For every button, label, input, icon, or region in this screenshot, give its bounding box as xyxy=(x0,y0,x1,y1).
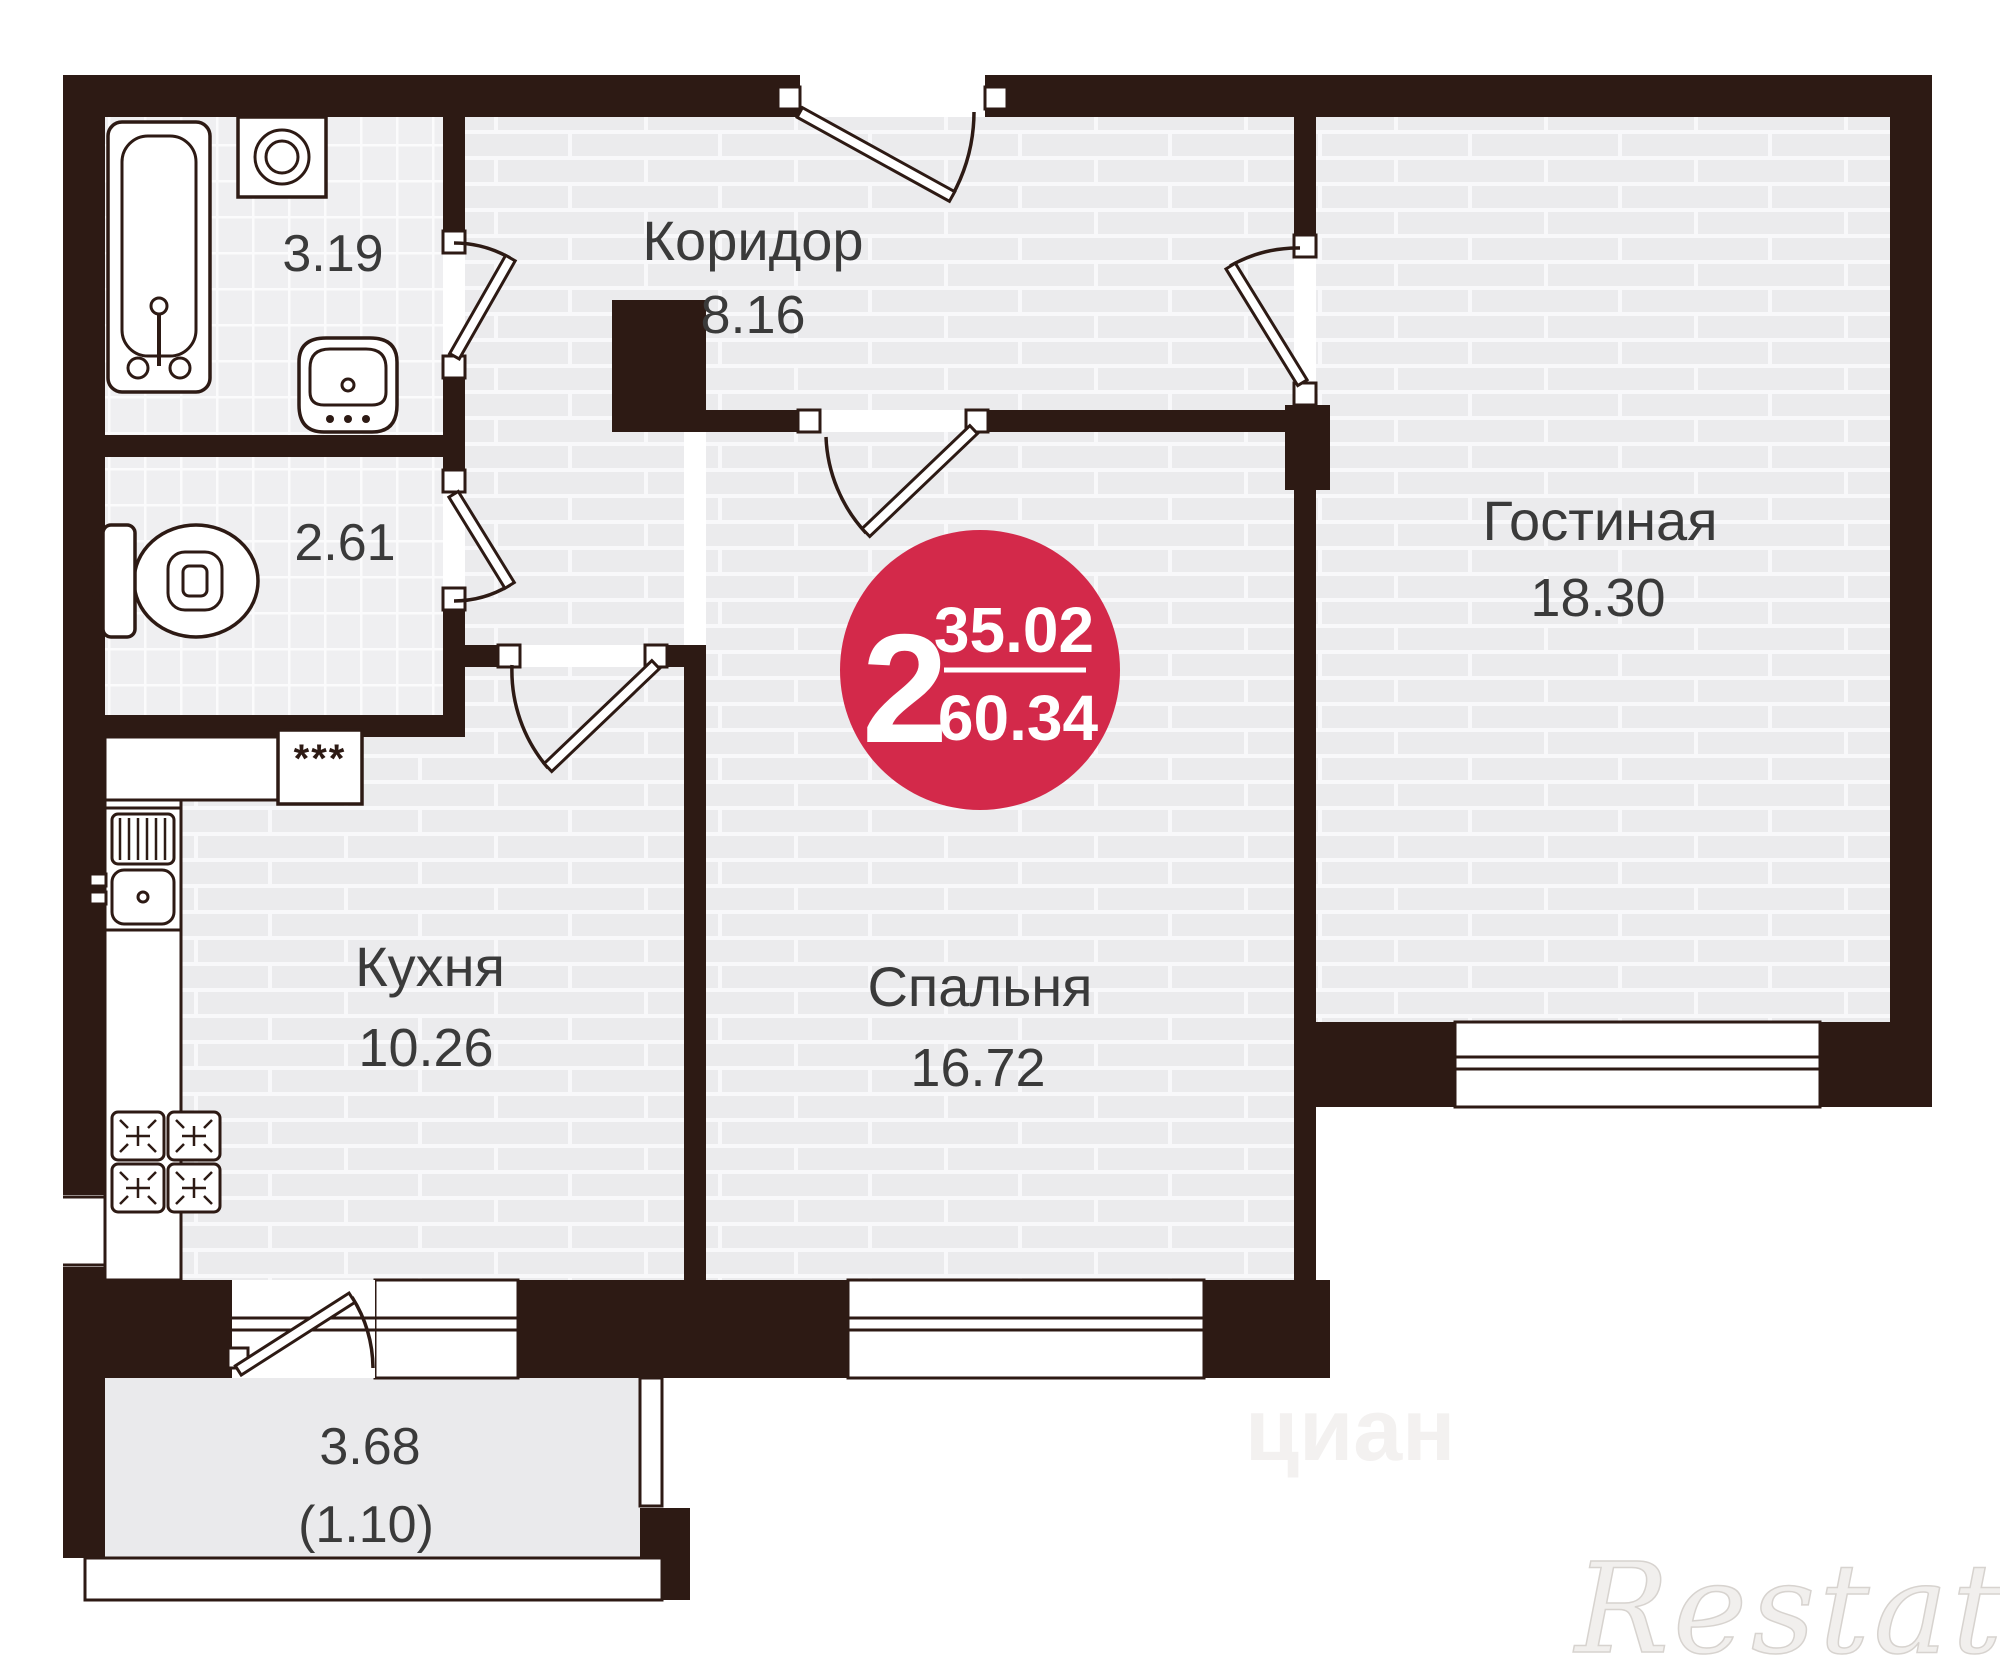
wall-right xyxy=(1890,117,1932,1107)
oven-icon: *** xyxy=(278,730,362,804)
wall-top-left xyxy=(63,75,800,117)
washing-machine-icon xyxy=(238,117,326,197)
label-corridor-name: Коридор xyxy=(642,209,863,272)
wall-living-bottom-left xyxy=(1294,1022,1455,1107)
room-floor-corridor-arm xyxy=(465,410,684,645)
window-kitchen xyxy=(375,1280,518,1378)
label-living-area: 18.30 xyxy=(1530,568,1665,628)
window-living xyxy=(1455,1022,1820,1107)
window-bedroom xyxy=(848,1280,1204,1378)
wall-bedroom-bottom-right xyxy=(1204,1280,1330,1378)
window-balcony-bottom xyxy=(85,1558,662,1600)
window-balcony-right xyxy=(640,1378,662,1506)
wall-kitchen-bottom-left xyxy=(63,1280,232,1378)
label-balcony-area: 3.68 xyxy=(319,1418,420,1476)
wall-bedroom-pier xyxy=(612,300,706,432)
label-corridor-area: 8.16 xyxy=(700,285,805,345)
floor-plan: *** xyxy=(0,0,2000,1670)
label-bedroom-area: 16.72 xyxy=(910,1038,1045,1098)
toilet-icon xyxy=(93,525,259,637)
area-badge: 2 35.02 60.34 xyxy=(840,530,1120,810)
badge-living-area: 35.02 xyxy=(934,594,1094,666)
label-bathroom-area: 3.19 xyxy=(282,225,383,283)
wall-living-bottom-right xyxy=(1820,1022,1932,1107)
wall-divider-lower xyxy=(1294,1107,1316,1280)
wall-wc-bottom xyxy=(63,715,465,737)
wall-top-right xyxy=(985,75,1932,117)
wall-bath-wc-divider xyxy=(63,435,465,457)
wall-living-divider-upper xyxy=(1294,117,1316,235)
label-kitchen-area: 10.26 xyxy=(358,1018,493,1078)
watermark-cian: циан xyxy=(1245,1380,1455,1479)
floor-plan-canvas: *** xyxy=(0,0,2000,1670)
wall-living-pier xyxy=(1285,405,1330,490)
watermark-restate: Restate xyxy=(1573,1537,2000,1670)
label-wc-area: 2.61 xyxy=(294,514,395,572)
badge-total-area: 60.34 xyxy=(938,682,1099,754)
sink-icon xyxy=(299,338,397,432)
door-balcony xyxy=(228,1280,375,1378)
label-bedroom-name: Спальня xyxy=(867,955,1092,1018)
label-balcony-area-secondary: (1.10) xyxy=(298,1496,434,1554)
watermarks: циан Restate xyxy=(1245,1380,2000,1670)
oven-label: *** xyxy=(294,737,347,781)
label-living-name: Гостиная xyxy=(1482,489,1717,552)
bathtub-icon xyxy=(108,122,210,392)
wall-living-divider xyxy=(1294,490,1316,1022)
label-kitchen-name: Кухня xyxy=(355,935,505,998)
kitchen-sink-icon xyxy=(90,808,181,930)
wall-bedroom-top-right xyxy=(966,410,1294,432)
wall-kitchen-bedroom-divider xyxy=(684,645,706,1280)
window-left-wall xyxy=(60,1195,108,1267)
wall-bottom-block xyxy=(518,1280,848,1378)
